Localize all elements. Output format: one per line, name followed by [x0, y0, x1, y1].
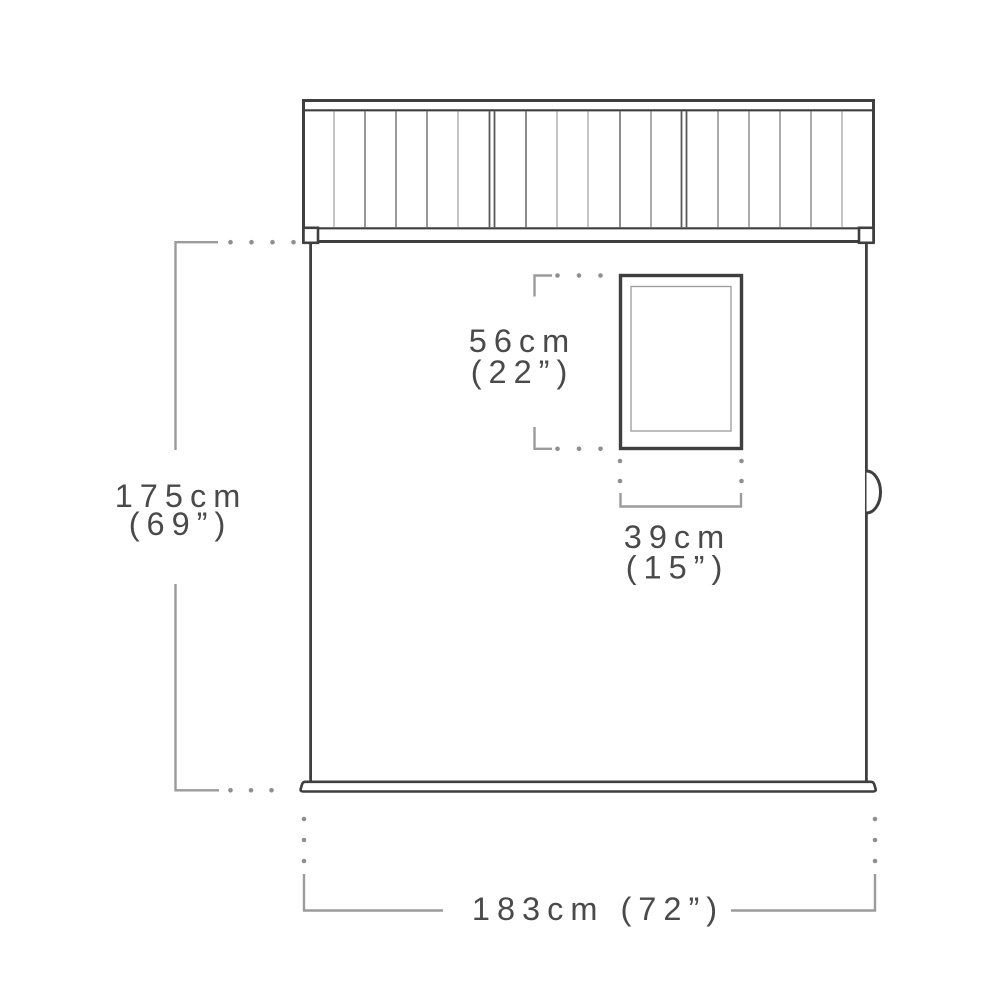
- svg-text:(15”): (15”): [626, 550, 730, 586]
- svg-text:(69”): (69”): [129, 506, 233, 542]
- svg-text:(22”): (22”): [471, 354, 575, 390]
- svg-text:183cm (72”): 183cm (72”): [472, 891, 724, 927]
